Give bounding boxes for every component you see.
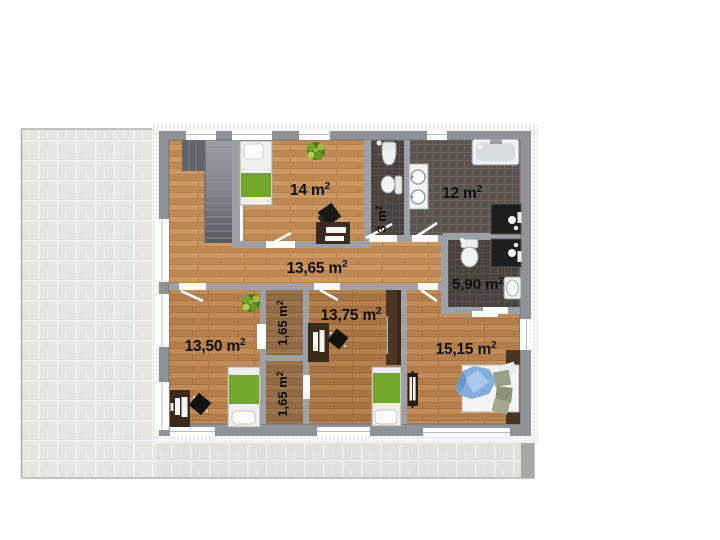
svg-text:5,90 m2: 5,90 m2 bbox=[452, 276, 505, 293]
svg-text:12 m2: 12 m2 bbox=[442, 184, 483, 202]
svg-text:14 m2: 14 m2 bbox=[290, 181, 331, 199]
svg-text:15,15 m2: 15,15 m2 bbox=[436, 340, 497, 358]
svg-text:1,65 m2: 1,65 m2 bbox=[275, 300, 290, 346]
svg-text:13,65 m2: 13,65 m2 bbox=[287, 259, 348, 277]
svg-text:1,65 m2: 1,65 m2 bbox=[275, 371, 290, 417]
svg-text:13,50 m2: 13,50 m2 bbox=[185, 337, 246, 355]
svg-text:13,75 m2: 13,75 m2 bbox=[321, 306, 382, 324]
